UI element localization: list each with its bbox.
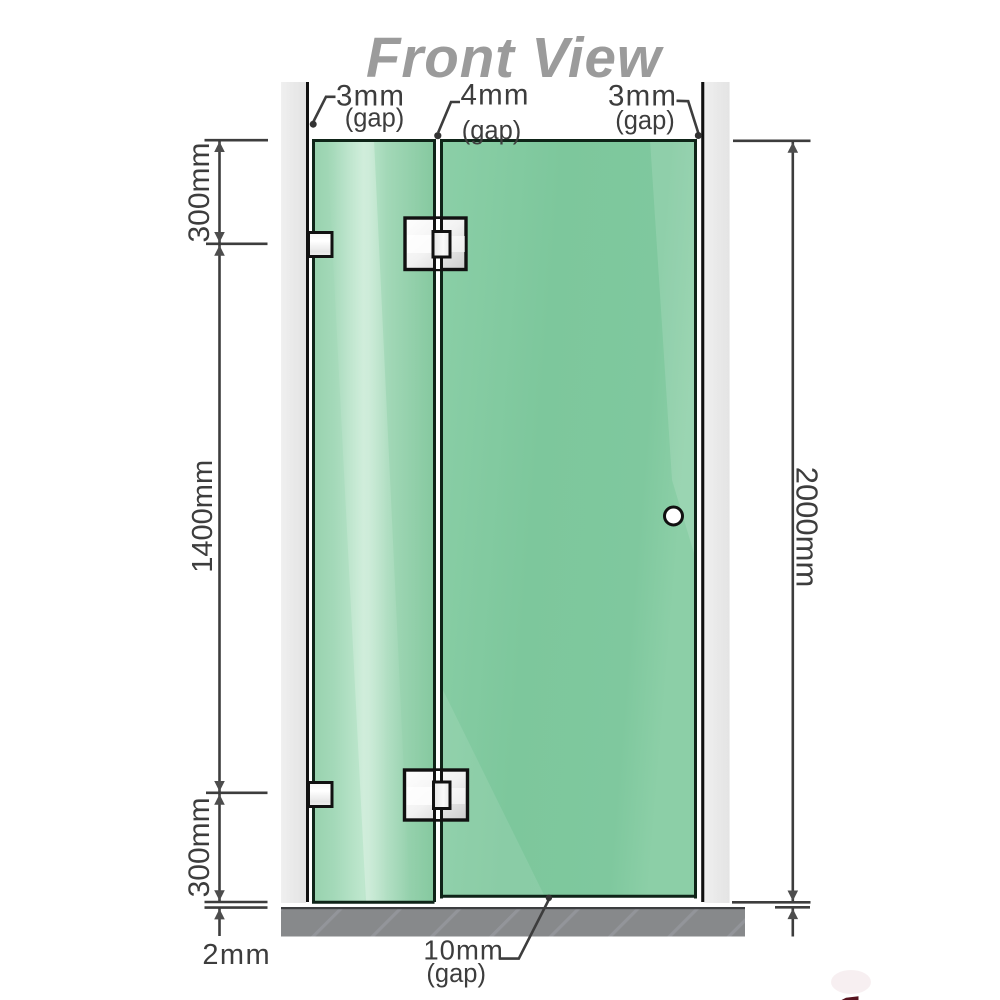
svg-text:4mm: 4mm [461, 79, 530, 112]
svg-text:(gap): (gap) [345, 105, 405, 133]
svg-text:(gap): (gap) [615, 107, 675, 135]
svg-text:(gap): (gap) [462, 117, 522, 145]
svg-text:2mm: 2mm [202, 939, 271, 971]
svg-text:300mm: 300mm [183, 797, 216, 897]
svg-text:1400mm: 1400mm [187, 460, 219, 573]
svg-text:2000mm: 2000mm [790, 467, 825, 588]
svg-text:300mm: 300mm [183, 142, 216, 242]
svg-text:(gap): (gap) [426, 960, 486, 988]
